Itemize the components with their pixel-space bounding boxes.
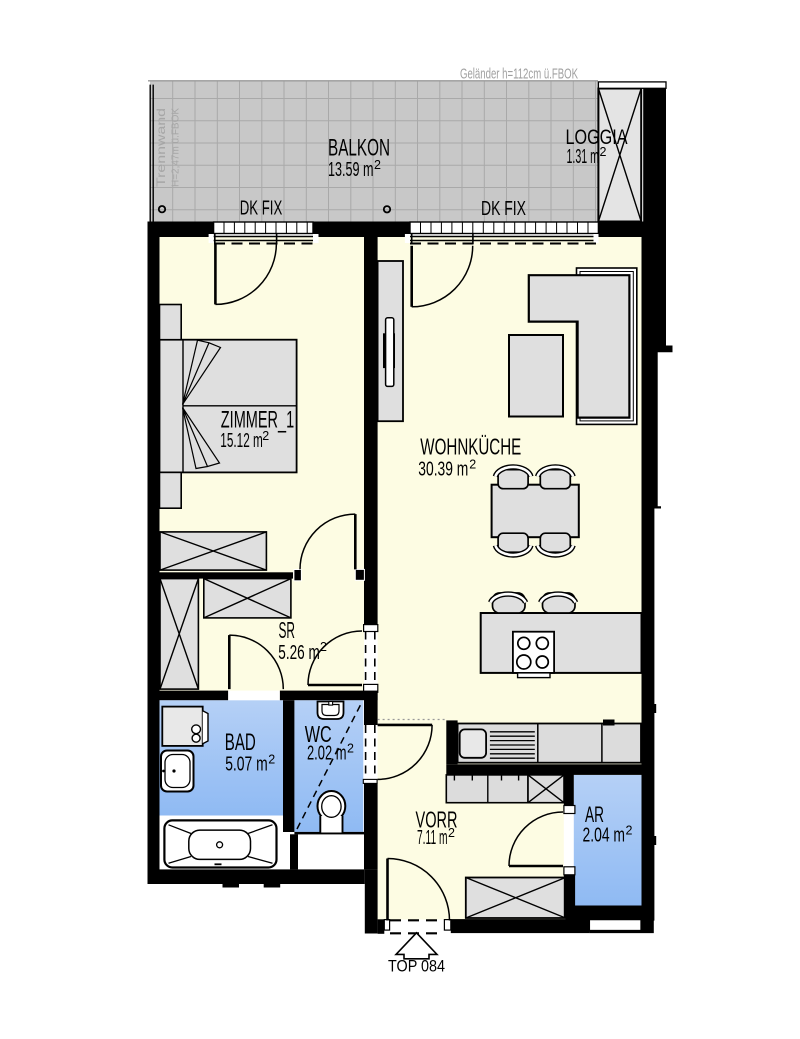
svg-text:2: 2 bbox=[320, 640, 327, 654]
svg-text:1.31 m: 1.31 m bbox=[567, 146, 600, 168]
svg-text:5.07 m: 5.07 m bbox=[225, 752, 268, 775]
svg-text:2.04 m: 2.04 m bbox=[583, 824, 626, 847]
svg-text:5.26 m: 5.26 m bbox=[278, 641, 320, 664]
svg-text:7.11 m: 7.11 m bbox=[417, 826, 448, 849]
svg-text:2: 2 bbox=[262, 429, 269, 443]
svg-text:Geländer h=112cm ü.FBOK: Geländer h=112cm ü.FBOK bbox=[460, 67, 578, 83]
svg-text:WOHNKÜCHE: WOHNKÜCHE bbox=[420, 434, 521, 460]
svg-text:DK FIX: DK FIX bbox=[481, 198, 526, 220]
svg-text:2: 2 bbox=[626, 824, 633, 838]
svg-text:H=2,47m ü.FBOK: H=2,47m ü.FBOK bbox=[170, 108, 182, 187]
svg-text:TOP 084: TOP 084 bbox=[388, 957, 445, 976]
svg-text:2: 2 bbox=[469, 458, 476, 472]
svg-text:13.59 m: 13.59 m bbox=[328, 159, 374, 181]
svg-text:Trennwand: Trennwand bbox=[154, 108, 168, 187]
svg-text:30.39 m: 30.39 m bbox=[418, 458, 468, 481]
svg-text:2: 2 bbox=[448, 826, 455, 840]
svg-text:DK FIX: DK FIX bbox=[240, 198, 283, 220]
svg-text:2.02 m: 2.02 m bbox=[307, 742, 347, 765]
svg-text:2: 2 bbox=[374, 158, 381, 172]
svg-text:SR: SR bbox=[279, 617, 296, 643]
svg-text:2: 2 bbox=[600, 145, 607, 159]
svg-text:2: 2 bbox=[268, 752, 275, 766]
svg-text:2: 2 bbox=[347, 742, 354, 756]
svg-text:15.12 m: 15.12 m bbox=[220, 429, 262, 452]
